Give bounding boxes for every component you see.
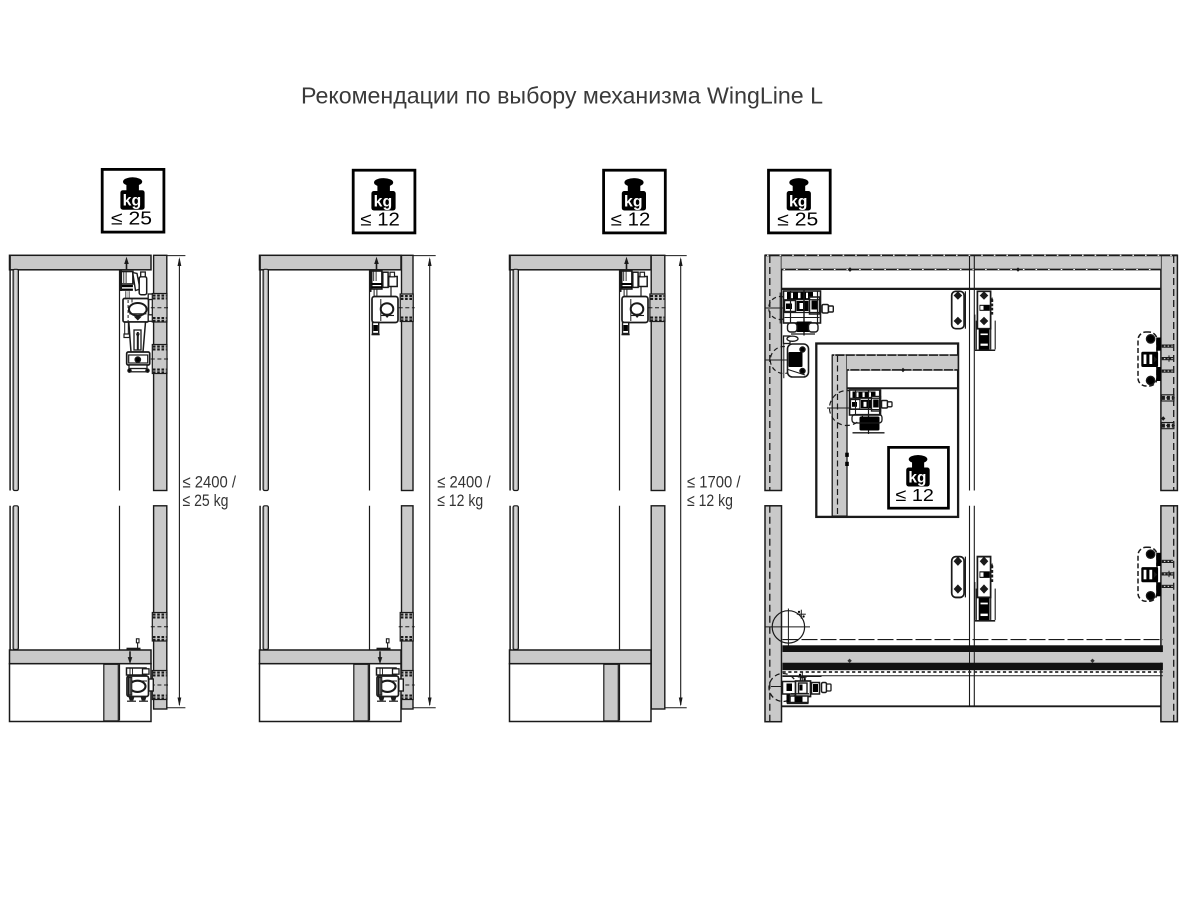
svg-text:≤ 25 kg: ≤ 25 kg: [183, 491, 229, 510]
svg-text:≤ 2400 /: ≤ 2400 /: [183, 472, 237, 491]
svg-text:≤ 25: ≤ 25: [111, 208, 152, 229]
svg-text:kg: kg: [908, 469, 926, 486]
svg-text:Рекомендации по выбору механиз: Рекомендации по выбору механизма WingLin…: [301, 83, 823, 109]
svg-text:≤ 12 kg: ≤ 12 kg: [437, 491, 483, 510]
svg-text:≤ 12 kg: ≤ 12 kg: [687, 491, 733, 510]
svg-text:≤ 12: ≤ 12: [360, 209, 400, 230]
svg-text:≤ 2400 /: ≤ 2400 /: [437, 472, 491, 491]
svg-text:≤ 25: ≤ 25: [777, 209, 818, 230]
svg-text:≤ 1700 /: ≤ 1700 /: [687, 472, 741, 491]
svg-text:≤ 12: ≤ 12: [611, 209, 651, 230]
svg-text:≤ 12: ≤ 12: [896, 485, 934, 505]
